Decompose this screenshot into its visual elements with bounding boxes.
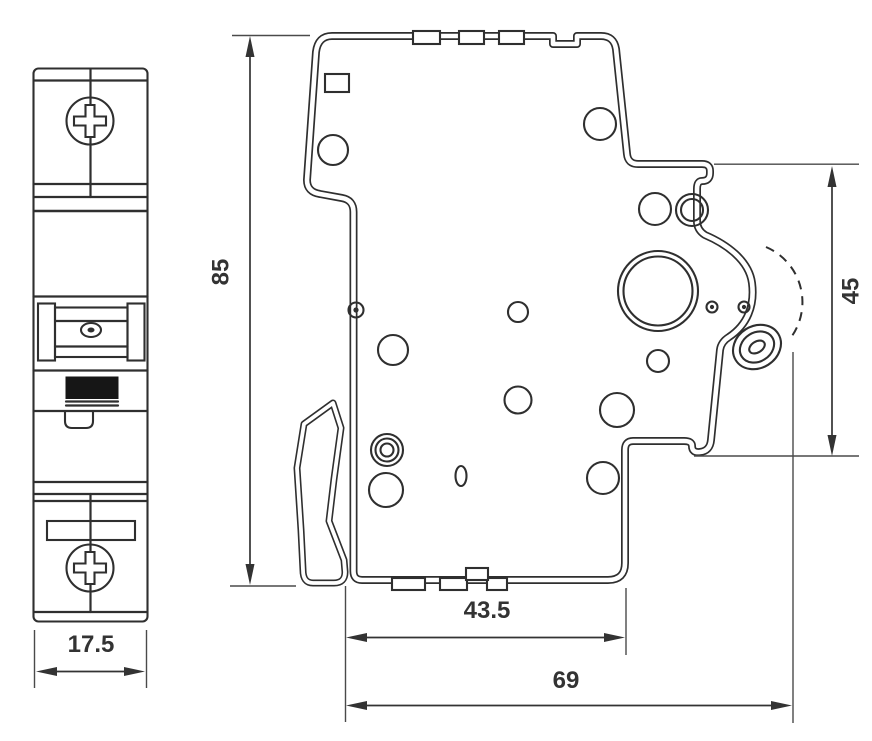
side-body-outline bbox=[307, 36, 753, 580]
toggle-tab bbox=[65, 411, 93, 428]
swing-arc-dashed bbox=[766, 247, 802, 336]
label-window-pin-dot bbox=[88, 328, 95, 333]
bottom-foot bbox=[487, 578, 507, 590]
arrowhead-up-icon bbox=[828, 166, 837, 187]
dim-label-85: 85 bbox=[208, 259, 235, 286]
arrowhead-down-icon bbox=[828, 435, 837, 456]
terminal-clamp-slot bbox=[747, 338, 767, 356]
vent-slot bbox=[459, 31, 484, 44]
vent-slot bbox=[499, 31, 524, 44]
label-window-right-bracket bbox=[128, 304, 145, 361]
toggle-handle bbox=[66, 377, 118, 399]
arrowhead-left-icon bbox=[346, 701, 367, 710]
arrowhead-up-icon bbox=[246, 36, 255, 57]
top-terminal-screw-cross-icon bbox=[74, 105, 106, 137]
dimension-17-5: 17.5 bbox=[36, 631, 145, 676]
bottom-terminal-screw-cross-icon bbox=[74, 552, 106, 584]
arrowhead-right-icon bbox=[124, 667, 145, 676]
dimension-45: 45 bbox=[828, 166, 865, 456]
label-window bbox=[38, 304, 145, 361]
dim-label-43-5: 43.5 bbox=[464, 597, 511, 624]
arrowhead-left-icon bbox=[36, 667, 57, 676]
dim-label-45: 45 bbox=[838, 278, 865, 305]
side-view bbox=[297, 31, 802, 590]
arrowhead-right-icon bbox=[771, 701, 792, 710]
dimension-43-5: 43.5 bbox=[346, 597, 625, 642]
dimension-69: 69 bbox=[346, 667, 792, 710]
bottom-foot bbox=[392, 578, 425, 590]
arrowhead-down-icon bbox=[246, 564, 255, 585]
dimension-drawing-canvas: 85 45 43.5 69 17.5 bbox=[0, 0, 872, 741]
dim-label-69: 69 bbox=[553, 667, 580, 694]
dimension-85: 85 bbox=[208, 36, 255, 585]
vent-slot bbox=[413, 31, 440, 44]
label-window-left-bracket bbox=[38, 304, 55, 361]
bottom-foot bbox=[440, 578, 467, 590]
latch-pivot-dot bbox=[742, 305, 746, 309]
edge-pivot-dot bbox=[353, 307, 358, 312]
mcb-dimension-drawing: 85 45 43.5 69 17.5 bbox=[0, 0, 872, 741]
arrowhead-left-icon bbox=[346, 633, 367, 642]
arrowhead-right-icon bbox=[604, 633, 625, 642]
toggle-switch bbox=[34, 371, 148, 429]
latch-pivot-dot bbox=[710, 305, 714, 309]
front-view bbox=[34, 69, 148, 622]
bottom-center-lug bbox=[466, 568, 488, 580]
dim-label-17-5: 17.5 bbox=[68, 631, 115, 658]
